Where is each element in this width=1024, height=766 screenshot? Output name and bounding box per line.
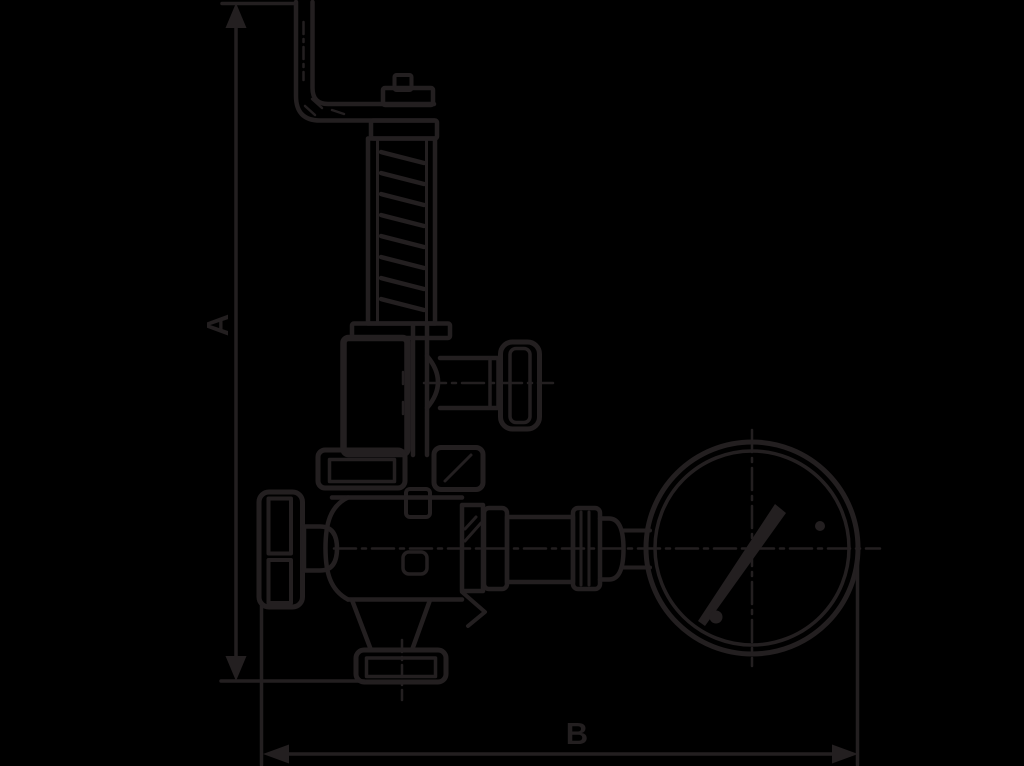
valve-body xyxy=(326,498,486,627)
dimension-b-arrow-left xyxy=(263,745,289,764)
spring-tube-walls xyxy=(378,141,427,321)
boss-hatch xyxy=(465,517,481,541)
handwheel-window-bottom xyxy=(269,560,292,603)
flange-plate-left-inner xyxy=(330,460,395,482)
bonnet-box xyxy=(344,338,408,454)
dimension-a-arrow-up xyxy=(226,3,247,28)
spring-coils xyxy=(381,152,424,310)
test-valve xyxy=(440,342,540,429)
adjusting-cap xyxy=(371,75,437,139)
handwheel-hub xyxy=(304,527,337,571)
test-valve-knob xyxy=(501,342,540,429)
test-valve-knob-inner xyxy=(510,349,530,423)
mounting-flange xyxy=(318,448,483,518)
dimension-a-arrow-down xyxy=(226,656,247,681)
lever-bend-hatch xyxy=(305,99,344,115)
bottom-outlet xyxy=(352,600,446,682)
valve-technical-drawing: A B xyxy=(0,0,1024,766)
gauge-screw-lower xyxy=(710,611,723,624)
handwheel-rim xyxy=(259,492,303,607)
bonnet-right-column xyxy=(413,326,427,455)
cap-flange xyxy=(371,121,437,139)
dimension-a-label: A xyxy=(200,314,235,336)
lift-lever xyxy=(296,2,434,121)
handwheel-window-top xyxy=(269,499,292,554)
gauge-needle xyxy=(698,504,786,626)
dimension-b-label: B xyxy=(566,716,588,751)
drawing-canvas: A B xyxy=(0,0,1024,766)
bonnet xyxy=(344,326,439,455)
gauge-screw-right xyxy=(815,521,825,531)
body-bottom-right-chamfer xyxy=(462,592,485,626)
flange-plate-right-hatch xyxy=(445,455,471,481)
spring-housing xyxy=(352,139,450,339)
stem-guide xyxy=(406,489,430,517)
body-stem-nut xyxy=(403,552,427,574)
outlet-neck xyxy=(352,600,430,650)
dimension-b-arrow-right xyxy=(832,745,858,764)
